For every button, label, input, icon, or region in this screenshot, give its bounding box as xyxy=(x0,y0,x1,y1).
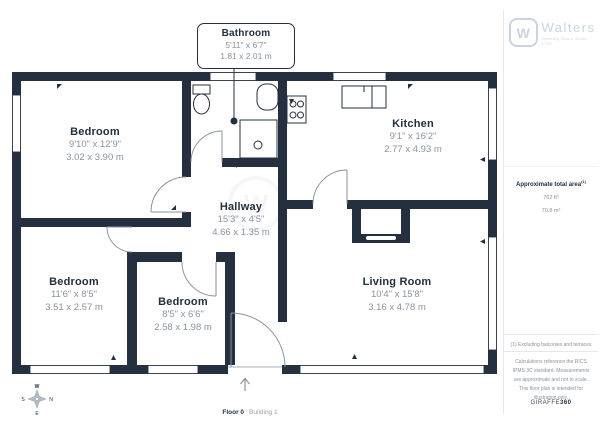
room-label-bedroom-3: Bedroom 8'5" x 6'6" 2.58 x 1.98 m xyxy=(154,296,212,335)
room-dims-imperial: 11'6" x 8'5" xyxy=(45,289,103,302)
brand-logo: W Walters Opening Doors Since 1790 xyxy=(509,18,598,47)
room-name: Bedroom xyxy=(45,276,103,288)
door-arc-kitchen xyxy=(313,170,347,204)
toilet-icon xyxy=(193,85,210,114)
compass-right-label: N xyxy=(49,397,53,403)
room-label-hallway: Hallway 15'3" x 4'5" 4.66 x 1.35 m xyxy=(212,201,270,240)
credit-prefix: GIRAFFE xyxy=(530,400,560,406)
total-area-ft: 762 ft² xyxy=(504,195,598,201)
room-name: Bedroom xyxy=(66,126,124,138)
brand-tagline: Opening Doors Since 1790 xyxy=(542,36,599,46)
room-dims-metric: 2.58 x 1.98 m xyxy=(154,322,212,335)
door-arc-entrance xyxy=(231,313,285,367)
building-label: Building 1 xyxy=(249,409,278,416)
room-dims-imperial: 15'3" x 4'5" xyxy=(212,214,270,227)
total-area-m: 70.8 m² xyxy=(504,208,598,214)
room-dims-imperial: 10'4" x 15'8" xyxy=(363,289,432,302)
room-dims-metric: 4.66 x 1.35 m xyxy=(212,227,270,240)
room-dims-metric: 1.81 x 2.01 m xyxy=(198,51,294,62)
room-dims-imperial: 8'5" x 6'6" xyxy=(154,309,212,322)
room-label-kitchen: Kitchen 9'1" x 16'2" 2.77 x 4.93 m xyxy=(384,118,442,157)
giraffe360-credit: GIRAFFE360 xyxy=(504,400,598,406)
room-dims-imperial: 5'11" x 6'7" xyxy=(198,40,294,51)
room-label-bedroom-2: Bedroom 11'6" x 8'5" 3.51 x 2.57 m xyxy=(45,276,103,315)
info-sidebar: W Walters Opening Doors Since 1790 Appro… xyxy=(503,10,598,414)
room-dims-metric: 2.77 x 4.93 m xyxy=(384,144,442,157)
sink-icon xyxy=(342,86,386,108)
door-arc-bedroom2 xyxy=(107,227,132,252)
basin-icon xyxy=(257,84,278,110)
room-name: Bedroom xyxy=(154,296,212,308)
room-dims-imperial: 9'10" x 12'9" xyxy=(66,139,124,152)
disclaimer-block: Calculations reference the RICS IPMS 3C … xyxy=(504,351,598,414)
brand-text: Walters Opening Doors Since 1790 xyxy=(542,20,599,46)
room-name: Bathroom xyxy=(198,28,294,39)
room-label-living-room: Living Room 10'4" x 15'8" 3.16 x 4.78 m xyxy=(363,276,432,315)
total-area-block: Approximate total area(1) 762 ft² 70.8 m… xyxy=(504,166,598,214)
shower-icon xyxy=(240,120,277,158)
compass-left-label: S xyxy=(21,397,25,403)
total-area-label: Approximate total area(1) xyxy=(504,179,598,188)
entrance-arrow-icon xyxy=(241,379,250,392)
compass-icon: W N S E xyxy=(21,384,53,417)
room-name: Hallway xyxy=(212,201,270,213)
room-dims-metric: 3.51 x 2.57 m xyxy=(45,302,103,315)
area-footnote: (1) Excluding balconies and terraces xyxy=(504,334,598,348)
floor-footer: Floor 0Building 1 xyxy=(190,401,310,419)
brand-name: Walters xyxy=(542,20,599,35)
walters-monogram-icon: W xyxy=(509,18,538,47)
room-dims-imperial: 9'1" x 16'2" xyxy=(384,131,442,144)
door-arc-bedroom1 xyxy=(151,177,186,212)
room-dims-metric: 3.02 x 3.90 m xyxy=(66,152,124,165)
monogram-letter: W xyxy=(517,25,530,41)
floorplan-page: { "brand": { "name": "Walters", "tagline… xyxy=(0,0,600,424)
total-area-text: Approximate total area xyxy=(516,182,581,188)
disclaimer-text: Calculations reference the RICS IPMS 3C … xyxy=(509,358,593,403)
room-label-bedroom-1: Bedroom 9'10" x 12'9" 3.02 x 3.90 m xyxy=(66,126,124,165)
floor-label: Floor 0 xyxy=(222,409,244,416)
compass-bottom-label: E xyxy=(35,411,39,417)
room-label-bathroom: Bathroom 5'11" x 6'7" 1.81 x 2.01 m xyxy=(197,23,295,69)
room-name: Kitchen xyxy=(384,118,442,130)
total-area-superscript: (1) xyxy=(581,179,586,184)
room-name: Living Room xyxy=(363,276,432,288)
door-arc-bedroom3 xyxy=(182,262,216,296)
credit-suffix: 360 xyxy=(560,400,572,406)
door-arc-bathroom xyxy=(191,131,222,162)
room-dims-metric: 3.16 x 4.78 m xyxy=(363,302,432,315)
compass-top-label: W xyxy=(35,384,40,390)
